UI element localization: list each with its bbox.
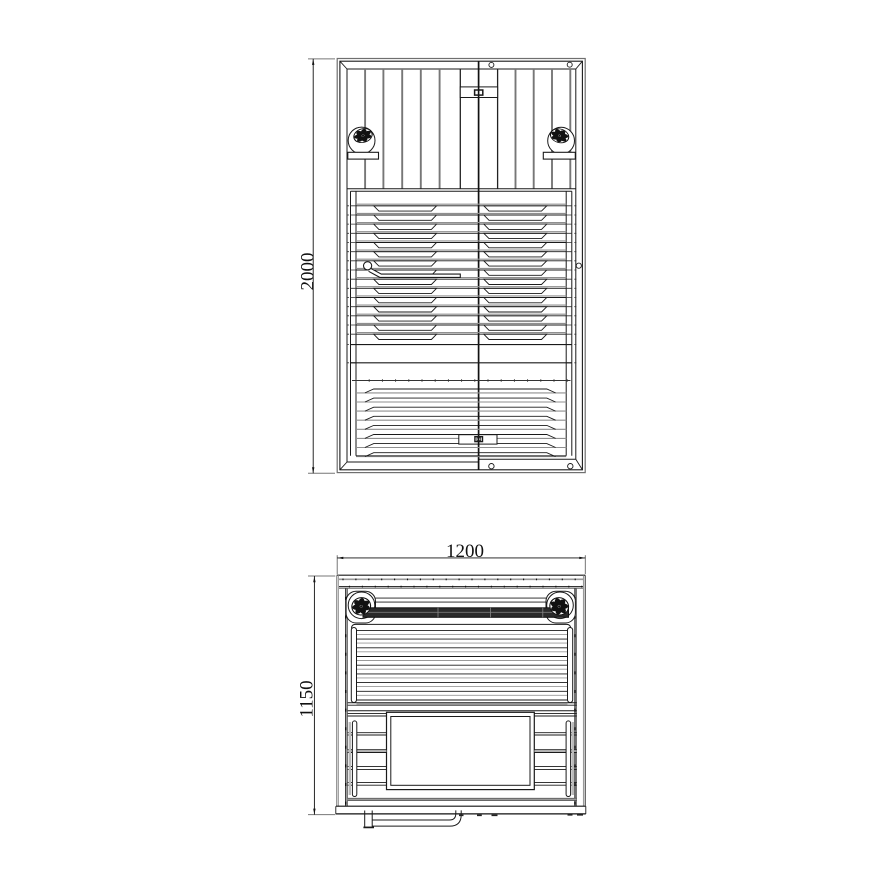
svg-text:1150: 1150 bbox=[297, 680, 318, 717]
svg-text:1200: 1200 bbox=[446, 541, 484, 562]
svg-text:2000: 2000 bbox=[297, 253, 318, 291]
